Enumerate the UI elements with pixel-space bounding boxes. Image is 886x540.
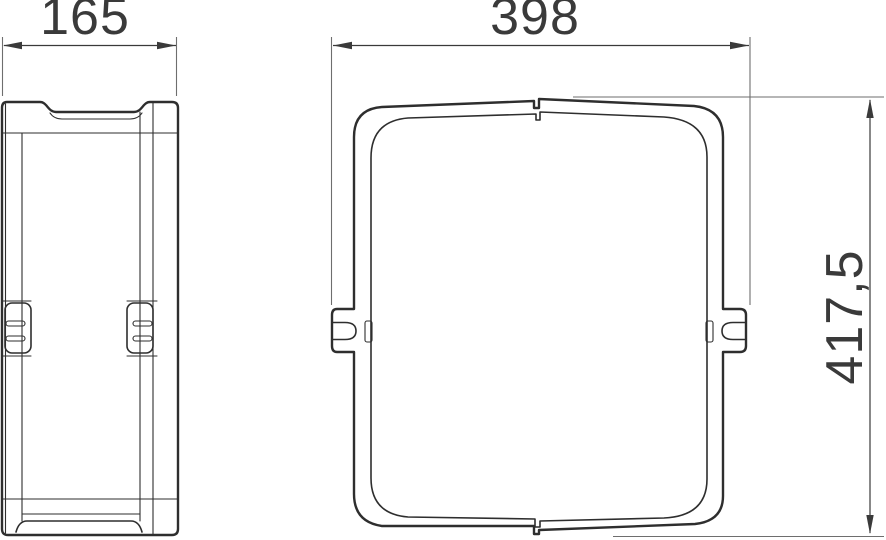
arrowhead-width-left xyxy=(333,42,352,49)
drawing-linework xyxy=(0,0,886,540)
dimension-label-height: 417,5 xyxy=(820,237,870,397)
side-view-tab-left-outline xyxy=(5,303,31,353)
technical-drawing-canvas: 165 398 417,5 xyxy=(0,0,886,540)
front-view xyxy=(332,99,746,534)
front-view-inner-outline xyxy=(371,112,707,527)
side-view-outer-outline xyxy=(2,102,178,535)
arrowhead-width-right xyxy=(730,42,749,49)
arrowhead-height-top xyxy=(866,99,873,118)
arrowhead-depth-left xyxy=(3,42,22,49)
side-view-tab-right xyxy=(127,301,157,356)
side-view-bottom-recess-line xyxy=(16,521,142,532)
side-view xyxy=(2,102,178,535)
front-view-latch-finger-left xyxy=(332,323,356,340)
side-view-top-recess-inner-line xyxy=(50,113,142,119)
front-view-outer-outline xyxy=(332,99,746,534)
arrowhead-height-bottom xyxy=(866,515,873,534)
dimension-label-width: 398 xyxy=(485,0,585,42)
front-view-latch-finger-right xyxy=(722,323,746,340)
side-view-tab-right-latch-upper xyxy=(133,321,152,326)
side-view-tab-left xyxy=(2,301,31,356)
side-view-tab-right-latch-lower xyxy=(133,336,152,341)
dimension-label-depth: 165 xyxy=(35,0,135,42)
arrowhead-depth-right xyxy=(157,42,176,49)
